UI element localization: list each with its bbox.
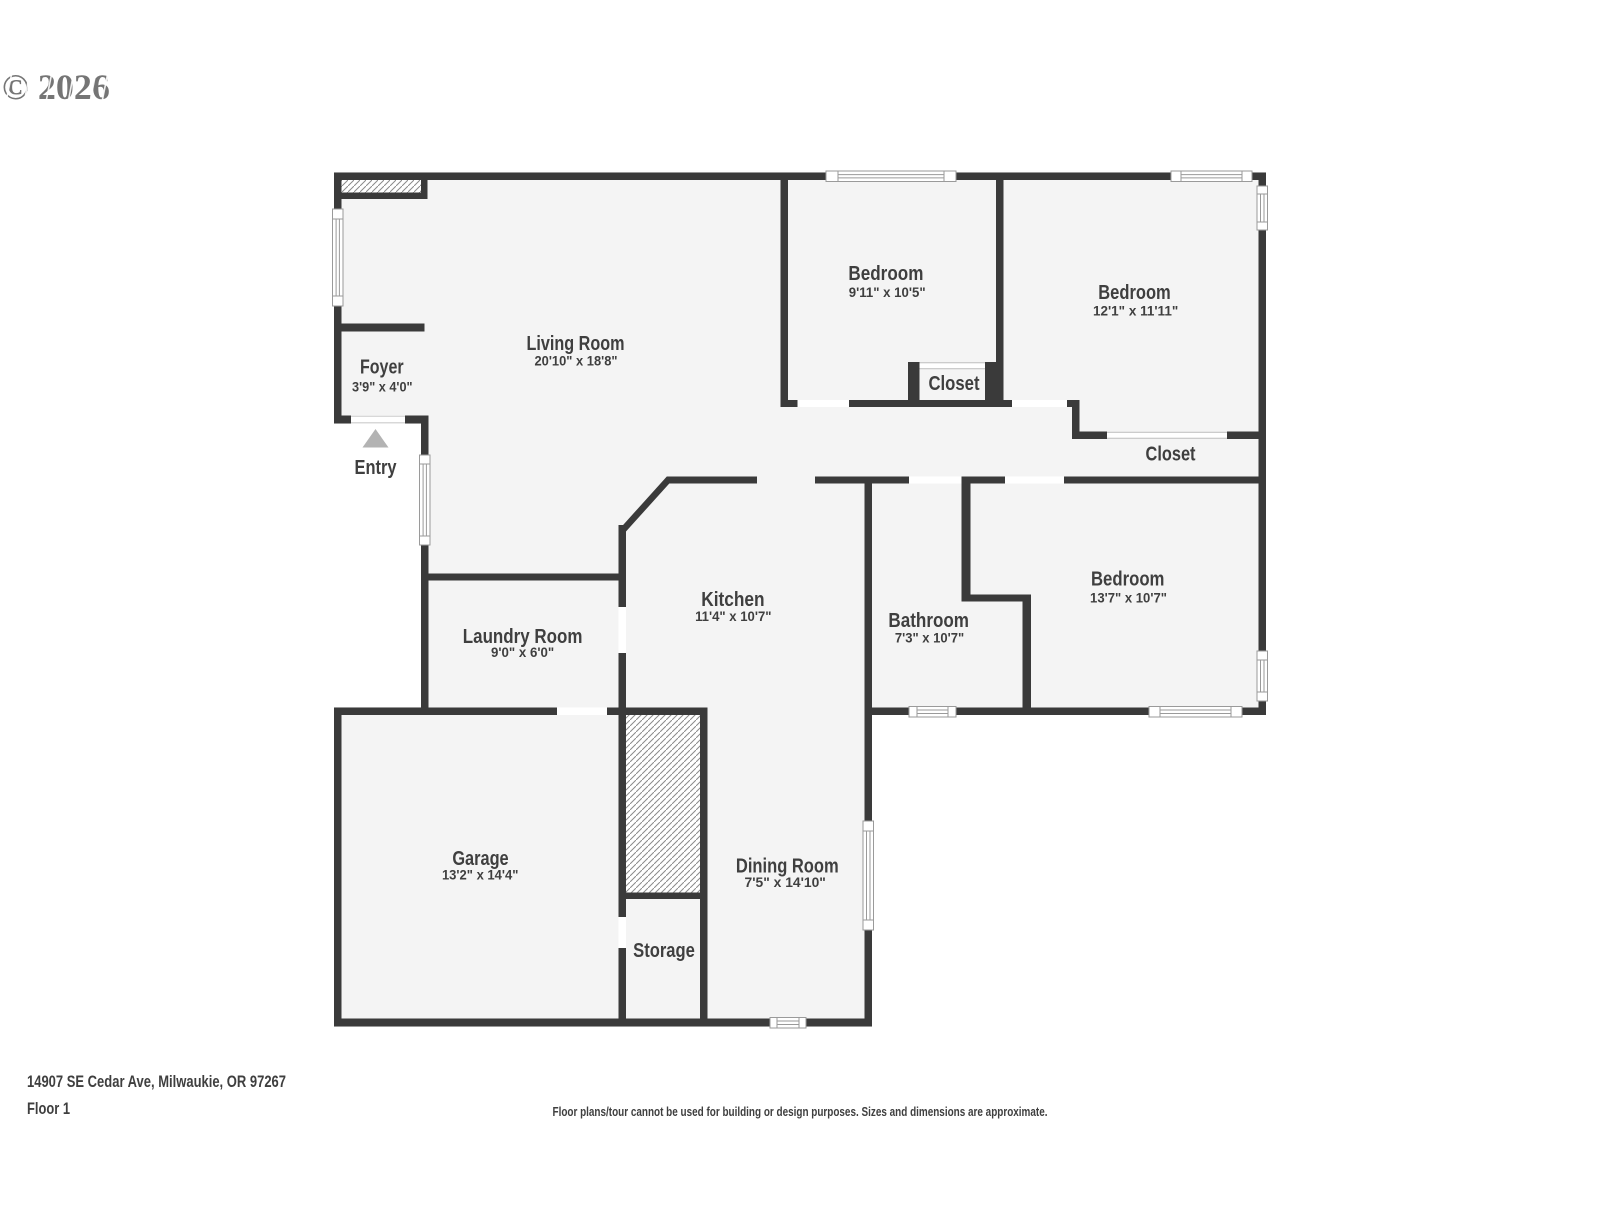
svg-text:14907 SE Cedar Ave, Milwaukie,: 14907 SE Cedar Ave, Milwaukie, OR 97267 (27, 1073, 286, 1091)
svg-text:Floor plans/tour cannot be use: Floor plans/tour cannot be used for buil… (553, 1104, 1048, 1119)
svg-text:Living Room: Living Room (527, 333, 625, 355)
svg-text:Closet: Closet (929, 373, 980, 395)
svg-text:Bedroom: Bedroom (1098, 282, 1171, 304)
svg-text:Floor 1: Floor 1 (27, 1100, 70, 1118)
svg-text:Closet: Closet (1146, 444, 1196, 466)
svg-text:Bedroom: Bedroom (848, 263, 923, 285)
svg-text:7'3" x 10'7": 7'3" x 10'7" (895, 631, 964, 646)
svg-text:Entry: Entry (355, 457, 398, 479)
svg-text:Kitchen: Kitchen (701, 589, 764, 611)
svg-text:Storage: Storage (633, 940, 695, 962)
svg-text:20'10" x 18'8": 20'10" x 18'8" (535, 354, 618, 369)
svg-text:7'5" x 14'10": 7'5" x 14'10" (745, 875, 826, 890)
svg-text:12'1" x 11'11": 12'1" x 11'11" (1093, 304, 1178, 319)
svg-text:3'9" x 4'0": 3'9" x 4'0" (352, 380, 413, 395)
svg-text:13'2" x 14'4": 13'2" x 14'4" (442, 868, 519, 883)
svg-text:9'0" x 6'0": 9'0" x 6'0" (491, 645, 554, 660)
svg-text:Bedroom: Bedroom (1091, 569, 1165, 591)
svg-text:13'7" x 10'7": 13'7" x 10'7" (1090, 591, 1167, 606)
svg-text:11'4" x 10'7": 11'4" x 10'7" (695, 609, 771, 624)
svg-text:Foyer: Foyer (360, 357, 404, 379)
svg-text:9'11" x 10'5": 9'11" x 10'5" (849, 285, 926, 300)
svg-text:Bathroom: Bathroom (888, 610, 969, 632)
